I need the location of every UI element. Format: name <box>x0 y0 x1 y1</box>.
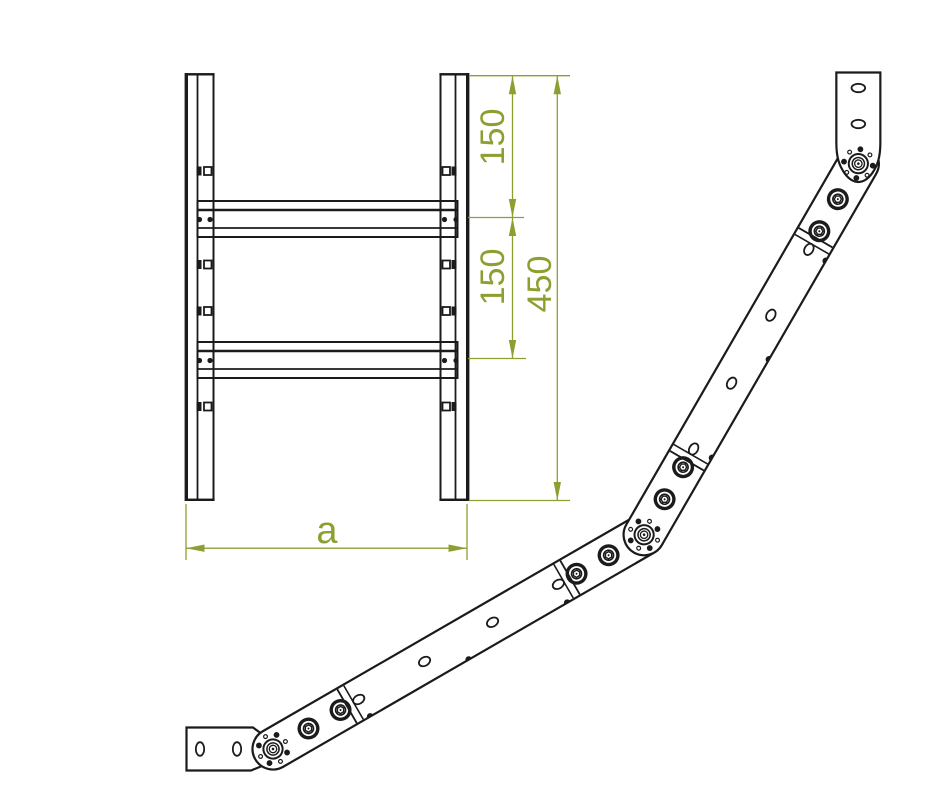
dim-label-150-top: 150 <box>474 109 512 166</box>
rail-slot-holes-row-4 <box>197 402 457 411</box>
dimension-450-total: 450 <box>521 76 561 501</box>
ladder-front-view <box>185 73 469 501</box>
dimension-150-top: 150 <box>474 76 516 218</box>
drawing-canvas: 150 150 450 a <box>0 0 933 802</box>
dimension-annotations: 150 150 450 a <box>186 76 570 560</box>
bottom-rung <box>197 342 459 378</box>
dim-label-150-middle: 150 <box>474 249 512 306</box>
top-rung <box>197 201 459 237</box>
cable-ladder-technical-drawing: 150 150 450 a <box>0 0 933 802</box>
right-side-rail <box>439 73 469 501</box>
rail-slot-holes-row-3 <box>197 307 457 316</box>
dim-label-a: a <box>316 510 338 552</box>
rail-segment-upper <box>616 136 886 563</box>
dim-label-450: 450 <box>521 256 559 313</box>
left-side-rail <box>185 73 215 501</box>
dimension-width-a: a <box>186 510 467 552</box>
rail-slot-holes-row-2 <box>197 260 457 269</box>
dimension-150-middle: 150 <box>474 218 516 359</box>
rail-slot-holes-row-1 <box>197 167 457 176</box>
ladder-side-view <box>187 73 887 778</box>
